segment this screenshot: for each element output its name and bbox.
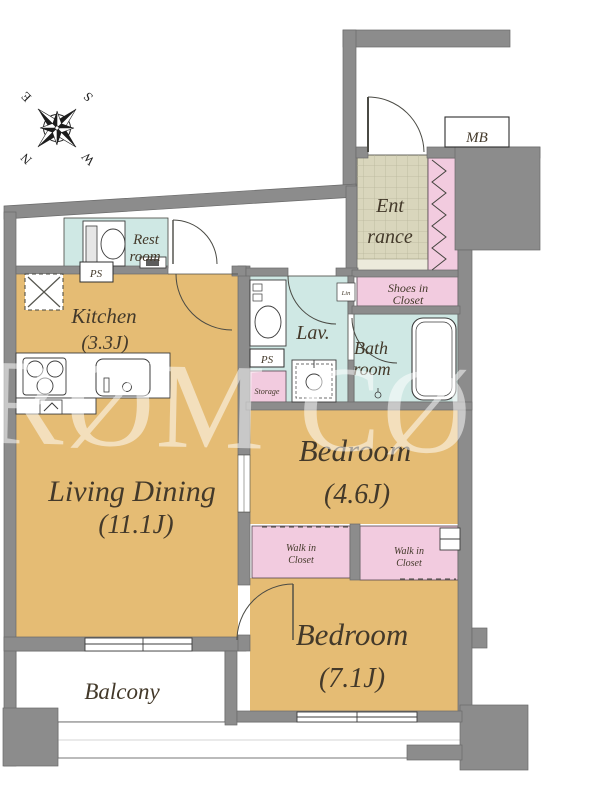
shoes-closet-label-2: Closet [393,293,424,307]
entrance-label-2: rance [367,226,413,248]
balcony-label: Balcony [84,679,160,704]
entrance-label-1: Ent [375,195,404,217]
rest-room-door-arc [173,220,217,264]
walk-in-closet2-window [440,528,460,550]
wic1-label-1: Walk in [286,543,316,554]
compass-s-label: S [80,89,96,105]
rest-room-label-1: Rest [132,232,160,248]
bedroom2-label: Bedroom [296,617,409,652]
compass-e-label: E [18,89,34,105]
toilet-icon [83,221,125,266]
wic2-label-2: Closet [396,558,422,569]
wic1-label-2: Closet [288,555,314,566]
wic2-label-1: Walk in [394,546,424,557]
compass-n-label: N [17,150,35,168]
bedroom1-size-label: (4.6J) [324,479,390,510]
ps-kitchen-label: PS [89,268,103,280]
linen-label: Lin [341,290,351,297]
entrance-closet [428,158,458,272]
compass-rose-icon: N E S W [17,89,98,169]
bedroom2-window [297,712,417,722]
living-dining-label: Living Dining [47,475,216,508]
watermark-text: RØM CØPY [0,335,600,484]
mb-label: MB [465,130,488,146]
kitchen-label: Kitchen [70,304,136,328]
washbasin-icon [250,280,286,346]
refrigerator-space-icon [25,274,63,310]
living-dining-window [85,638,192,651]
living-dining-size-label: (11.1J) [98,509,173,539]
rest-room-label-2: room [129,249,160,265]
compass-w-label: W [78,149,98,169]
floor-plan-page: Rest room Kitchen (3.3J) Living Dining (… [0,0,600,800]
bedroom2-size-label: (7.1J) [319,663,385,694]
floor-plan-svg: Rest room Kitchen (3.3J) Living Dining (… [0,0,600,800]
entrance-door-arc [368,97,424,152]
